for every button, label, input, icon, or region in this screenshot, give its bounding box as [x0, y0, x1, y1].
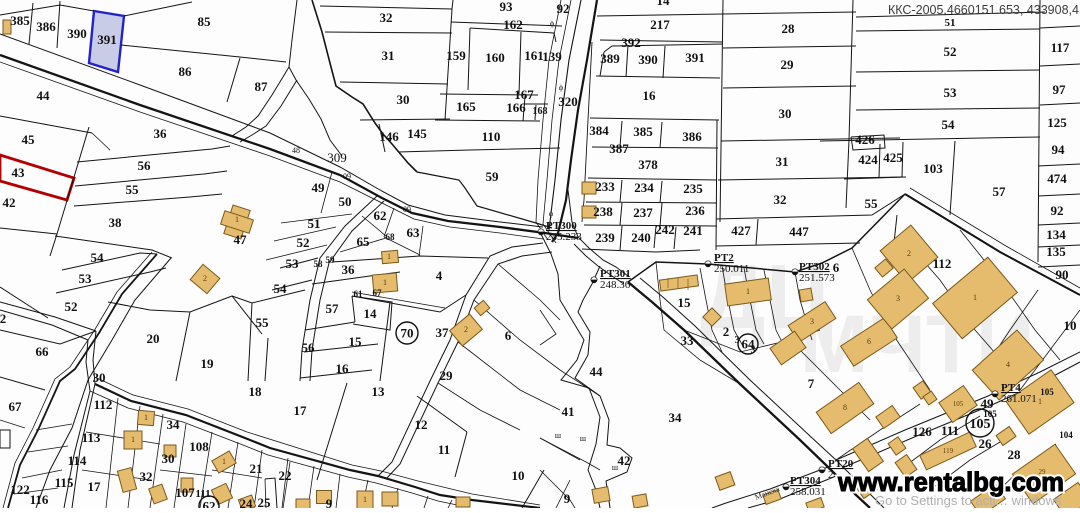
svg-text:92: 92	[1051, 203, 1064, 218]
svg-text:54: 54	[274, 281, 288, 296]
svg-text:30: 30	[397, 92, 410, 107]
svg-text:42: 42	[3, 195, 16, 210]
svg-text:28: 28	[1008, 447, 1022, 462]
svg-text:390: 390	[638, 52, 658, 67]
svg-text:119: 119	[943, 447, 954, 455]
svg-text:112: 112	[94, 397, 113, 412]
svg-text:32: 32	[774, 192, 787, 207]
svg-text:391: 391	[97, 32, 117, 47]
svg-text:31: 31	[382, 48, 395, 63]
svg-text:ф: ф	[559, 84, 564, 92]
svg-text:17: 17	[294, 403, 308, 418]
svg-text:9: 9	[326, 496, 333, 508]
svg-text:67: 67	[373, 288, 383, 298]
svg-text:1: 1	[131, 435, 135, 444]
svg-text:2: 2	[0, 311, 6, 326]
svg-text:1: 1	[1038, 397, 1042, 406]
svg-text:112: 112	[933, 256, 952, 271]
svg-text:217: 217	[650, 17, 670, 32]
svg-text:90: 90	[1056, 267, 1069, 282]
svg-text:28: 28	[782, 21, 796, 36]
svg-text:105: 105	[1040, 387, 1054, 397]
svg-text:31: 31	[776, 154, 789, 169]
svg-text:113: 113	[82, 430, 101, 445]
svg-text:15: 15	[678, 295, 692, 310]
svg-text:61: 61	[354, 289, 364, 299]
svg-text:41: 41	[562, 404, 575, 419]
svg-text:425: 425	[883, 150, 903, 165]
svg-text:3: 3	[751, 345, 756, 356]
svg-text:126: 126	[912, 424, 932, 439]
svg-text:389: 389	[600, 51, 620, 66]
svg-text:16: 16	[643, 88, 657, 103]
svg-text:ККС-2005.4660151.653, 433908,4: ККС-2005.4660151.653, 433908,41	[888, 3, 1080, 17]
svg-text:426: 426	[855, 132, 875, 147]
svg-text:1: 1	[746, 287, 750, 296]
svg-text:43: 43	[12, 165, 26, 180]
svg-text:55: 55	[126, 182, 140, 197]
svg-text:2: 2	[203, 274, 207, 283]
svg-text:1: 1	[387, 252, 391, 261]
svg-text:1: 1	[383, 278, 387, 287]
svg-text:37: 37	[436, 325, 450, 340]
svg-text:59: 59	[486, 169, 500, 184]
svg-text:9: 9	[564, 491, 571, 506]
svg-text:11: 11	[438, 442, 450, 457]
svg-text:134: 134	[1046, 227, 1066, 242]
svg-text:53: 53	[79, 271, 93, 286]
svg-text:55: 55	[865, 196, 879, 211]
svg-text:392: 392	[621, 35, 641, 50]
svg-text:… windows: … windows	[995, 493, 1062, 508]
svg-text:20: 20	[147, 331, 160, 346]
svg-text:53: 53	[286, 256, 300, 271]
svg-text:105: 105	[970, 417, 991, 432]
svg-text:391: 391	[685, 50, 705, 65]
svg-text:159: 159	[446, 48, 466, 63]
svg-text:94: 94	[1052, 142, 1066, 157]
svg-text:44: 44	[37, 88, 51, 103]
svg-text:1: 1	[144, 413, 148, 422]
svg-text:385: 385	[10, 13, 30, 28]
svg-text:165: 165	[456, 99, 476, 114]
svg-text:87: 87	[255, 79, 269, 94]
svg-text:33: 33	[681, 333, 695, 348]
svg-text:108: 108	[189, 439, 209, 454]
svg-text:390: 390	[67, 26, 87, 41]
svg-text:ф: ф	[550, 20, 555, 28]
svg-text:30: 30	[93, 370, 106, 385]
svg-text:167: 167	[514, 87, 534, 102]
svg-text:21: 21	[250, 461, 263, 476]
svg-text:17: 17	[88, 479, 102, 494]
svg-text:52: 52	[297, 235, 310, 250]
svg-text:50: 50	[339, 194, 352, 209]
svg-text:107: 107	[175, 485, 195, 500]
svg-text:251.573: 251.573	[799, 272, 835, 284]
svg-text:320: 320	[558, 94, 578, 109]
svg-text:10: 10	[1064, 318, 1077, 333]
svg-text:427: 427	[731, 223, 751, 238]
svg-text:09: 09	[403, 205, 411, 214]
svg-text:32: 32	[140, 469, 153, 484]
svg-text:57: 57	[326, 301, 340, 316]
svg-text:2: 2	[907, 249, 911, 258]
svg-text:139: 139	[542, 49, 562, 64]
svg-text:474: 474	[1047, 171, 1067, 186]
svg-text:104: 104	[1059, 430, 1073, 440]
svg-text:59: 59	[326, 255, 336, 265]
svg-text:57: 57	[993, 184, 1007, 199]
svg-text:68: 68	[386, 232, 396, 242]
svg-text:32: 32	[380, 10, 393, 25]
svg-text:12: 12	[415, 417, 428, 432]
svg-text:19: 19	[201, 356, 215, 371]
svg-text:386: 386	[36, 19, 56, 34]
svg-text:30: 30	[779, 106, 792, 121]
svg-text:424: 424	[858, 152, 878, 167]
svg-text:3: 3	[896, 294, 900, 303]
svg-text:1: 1	[222, 457, 226, 466]
svg-text:16: 16	[336, 361, 350, 376]
svg-text:42: 42	[618, 453, 631, 468]
svg-text:235: 235	[683, 181, 703, 196]
svg-text:15: 15	[349, 334, 363, 349]
svg-text:245.233: 245.233	[546, 231, 582, 243]
svg-text:10: 10	[512, 468, 525, 483]
svg-text:93: 93	[500, 0, 514, 14]
svg-text:160: 160	[485, 50, 505, 65]
svg-text:56: 56	[138, 158, 152, 173]
svg-text:239: 239	[595, 230, 615, 245]
svg-text:145: 145	[407, 126, 427, 141]
svg-text:248.36: 248.36	[600, 279, 631, 291]
svg-text:45: 45	[22, 132, 36, 147]
svg-text:387: 387	[609, 141, 629, 156]
svg-text:116: 116	[30, 492, 49, 507]
svg-text:162: 162	[503, 17, 523, 32]
svg-text:378: 378	[638, 157, 658, 172]
svg-text:09: 09	[343, 172, 351, 181]
svg-text:65: 65	[357, 234, 371, 249]
svg-text:51: 51	[945, 17, 956, 29]
svg-text:2: 2	[828, 469, 834, 481]
svg-text:36: 36	[342, 262, 356, 277]
svg-text:385: 385	[633, 124, 653, 139]
svg-text:103: 103	[923, 161, 943, 176]
svg-text:34: 34	[669, 410, 683, 425]
svg-text:386: 386	[682, 129, 702, 144]
svg-text:2: 2	[464, 325, 468, 334]
svg-text:8: 8	[843, 403, 847, 412]
svg-text:49: 49	[312, 180, 326, 195]
svg-text:47: 47	[234, 232, 248, 247]
svg-text:67: 67	[9, 399, 23, 414]
svg-text:29: 29	[440, 368, 454, 383]
svg-text:63: 63	[407, 225, 421, 240]
svg-text:97: 97	[1053, 82, 1067, 97]
svg-text:2: 2	[723, 324, 730, 339]
svg-text:54: 54	[91, 250, 105, 265]
svg-text:6: 6	[867, 337, 871, 346]
svg-text:7: 7	[808, 376, 815, 391]
svg-text:52: 52	[65, 299, 78, 314]
svg-text:117: 117	[1051, 40, 1070, 55]
svg-text:54: 54	[942, 117, 956, 132]
svg-text:4: 4	[436, 268, 443, 283]
svg-text:25: 25	[258, 495, 272, 508]
svg-text:105: 105	[953, 400, 964, 408]
svg-text:115: 115	[55, 475, 74, 490]
svg-text:111: 111	[941, 423, 959, 438]
svg-text:30: 30	[162, 451, 175, 466]
svg-text:3: 3	[810, 317, 814, 326]
svg-text:238: 238	[593, 204, 613, 219]
svg-text:1: 1	[973, 293, 977, 302]
svg-text:ф: ф	[549, 210, 554, 218]
svg-text:Go to Settings to acti: Go to Settings to acti	[875, 493, 996, 508]
svg-text:4: 4	[1006, 360, 1010, 369]
svg-text:92: 92	[557, 1, 570, 16]
svg-text:1: 1	[235, 215, 239, 224]
svg-text:36: 36	[154, 126, 168, 141]
svg-text:14: 14	[657, 0, 671, 8]
svg-text:70: 70	[401, 326, 414, 341]
svg-text:237: 237	[633, 205, 653, 220]
svg-text:146: 146	[379, 129, 399, 144]
svg-text:1: 1	[363, 495, 367, 504]
svg-text:ш: ш	[555, 431, 562, 440]
svg-text:242: 242	[655, 222, 675, 237]
svg-text:384: 384	[589, 123, 609, 138]
svg-text:168: 168	[533, 106, 548, 117]
svg-text:447: 447	[789, 224, 809, 239]
svg-text:135: 135	[1046, 244, 1066, 259]
svg-text:236: 236	[685, 203, 705, 218]
svg-text:110: 110	[482, 129, 501, 144]
svg-text:29: 29	[781, 57, 795, 72]
svg-text:18: 18	[249, 384, 263, 399]
svg-text:34: 34	[167, 417, 181, 432]
svg-text:240: 240	[631, 230, 651, 245]
svg-text:6: 6	[833, 260, 840, 275]
svg-text:ш: ш	[580, 434, 587, 443]
svg-text:38: 38	[109, 215, 123, 230]
svg-text:58: 58	[314, 259, 324, 269]
svg-text:125: 125	[1047, 115, 1067, 130]
svg-text:62: 62	[374, 208, 387, 223]
svg-text:44: 44	[590, 364, 604, 379]
svg-text:166: 166	[506, 100, 526, 115]
svg-text:241: 241	[683, 223, 703, 238]
svg-text:85: 85	[198, 14, 212, 29]
svg-text:258.031: 258.031	[790, 486, 826, 498]
svg-text:261.071: 261.071	[1001, 393, 1037, 405]
svg-text:3: 3	[735, 335, 740, 346]
svg-text:309: 309	[327, 150, 347, 165]
svg-text:55: 55	[256, 315, 270, 330]
svg-text:48: 48	[292, 146, 300, 155]
svg-text:52: 52	[944, 44, 957, 59]
svg-text:24: 24	[240, 496, 254, 508]
svg-text:86: 86	[179, 64, 193, 79]
svg-text:114: 114	[68, 453, 87, 468]
svg-text:66: 66	[36, 344, 50, 359]
svg-text:56: 56	[302, 340, 316, 355]
svg-text:161: 161	[524, 48, 544, 63]
svg-text:111: 111	[195, 488, 210, 500]
svg-text:122: 122	[10, 482, 30, 497]
svg-text:14: 14	[364, 306, 378, 321]
svg-text:250.011: 250.011	[714, 263, 749, 275]
svg-text:6: 6	[505, 328, 512, 343]
svg-text:13: 13	[372, 384, 386, 399]
svg-text:233: 233	[595, 179, 615, 194]
svg-text:105: 105	[983, 409, 997, 419]
svg-text:26: 26	[979, 436, 993, 451]
svg-text:53: 53	[944, 85, 958, 100]
svg-text:234: 234	[634, 180, 654, 195]
svg-text:22: 22	[279, 468, 292, 483]
svg-text:51: 51	[308, 216, 321, 231]
